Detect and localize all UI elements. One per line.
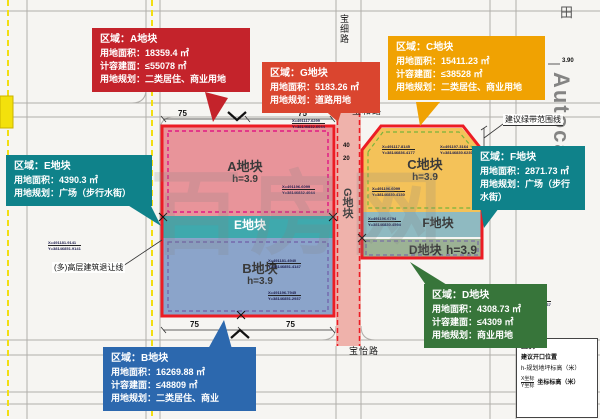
callout-g-title: 区域：G地块 <box>270 67 372 81</box>
callout-b: 区域：B地块 用地面积：16269.88 ㎡ 计容建面：≤48809 ㎡ 用地规… <box>103 347 256 411</box>
callout-c-use: 用地规划：二类居住、商业用地 <box>396 81 537 94</box>
callout-e-pointer <box>126 204 161 226</box>
callout-a-area: 用地面积：18359.4 ㎡ <box>100 47 242 60</box>
callout-c-pointer <box>416 102 440 126</box>
callout-g-area: 用地面积：5183.26 ㎡ <box>270 81 372 94</box>
callout-a: 区域：A地块 用地面积：18359.4 ㎡ 计容建面：≤55078 ㎡ 用地规划… <box>92 28 250 92</box>
callout-a-title: 区域：A地块 <box>100 33 242 47</box>
callout-f-title: 区域：F地块 <box>480 151 577 165</box>
callout-c-gfa: 计容建面：≤38528 ㎡ <box>396 68 537 81</box>
callout-c-area: 用地面积：15411.23 ㎡ <box>396 55 537 68</box>
callout-c-title: 区域：C地块 <box>396 41 537 55</box>
callout-d: 区域：D地块 用地面积：4308.73 ㎡ 计容建面：≤4309 ㎡ 用地规划：… <box>424 284 547 348</box>
callout-d-area: 用地面积：4308.73 ㎡ <box>432 303 539 316</box>
callout-g: 区域：G地块 用地面积：5183.26 ㎡ 用地规划：道路用地 <box>262 62 380 113</box>
callout-b-pointer <box>208 320 232 349</box>
callout-f-use: 用地规划：广场（步行水街） <box>480 178 577 204</box>
callout-e: 区域：E地块 用地面积：4390.3 ㎡ 用地规划：广场（步行水街） <box>6 155 152 206</box>
callout-b-area: 用地面积：16269.88 ㎡ <box>111 366 248 379</box>
callout-a-use: 用地规划：二类居住、商业用地 <box>100 73 242 86</box>
callout-a-pointer <box>205 92 228 122</box>
callout-e-area: 用地面积：4390.3 ㎡ <box>14 174 144 187</box>
callout-b-title: 区域：B地块 <box>111 352 248 366</box>
callout-b-gfa: 计容建面：≤48809 ㎡ <box>111 379 248 392</box>
callout-b-use: 用地规划：二类居住、商业 <box>111 392 248 405</box>
callout-f-area: 用地面积：2871.73 ㎡ <box>480 165 577 178</box>
callout-e-title: 区域：E地块 <box>14 160 144 174</box>
callout-e-use: 用地规划：广场（步行水街） <box>14 187 144 200</box>
callout-g-use: 用地规划：道路用地 <box>270 94 372 107</box>
callout-d-title: 区域：D地块 <box>432 289 539 303</box>
callout-f: 区域：F地块 用地面积：2871.73 ㎡ 用地规划：广场（步行水街） <box>472 146 585 210</box>
callout-d-use: 用地规划：商业用地 <box>432 329 539 342</box>
site-plan-map: 百房网 Autocad 田 A地块 h=3.9 B地块 h=3.9 C地块 h=… <box>0 0 600 419</box>
callout-d-gfa: 计容建面：≤4309 ㎡ <box>432 316 539 329</box>
callout-a-gfa: 计容建面：≤55078 ㎡ <box>100 60 242 73</box>
callout-c: 区域：C地块 用地面积：15411.23 ㎡ 计容建面：≤38528 ㎡ 用地规… <box>388 36 545 100</box>
